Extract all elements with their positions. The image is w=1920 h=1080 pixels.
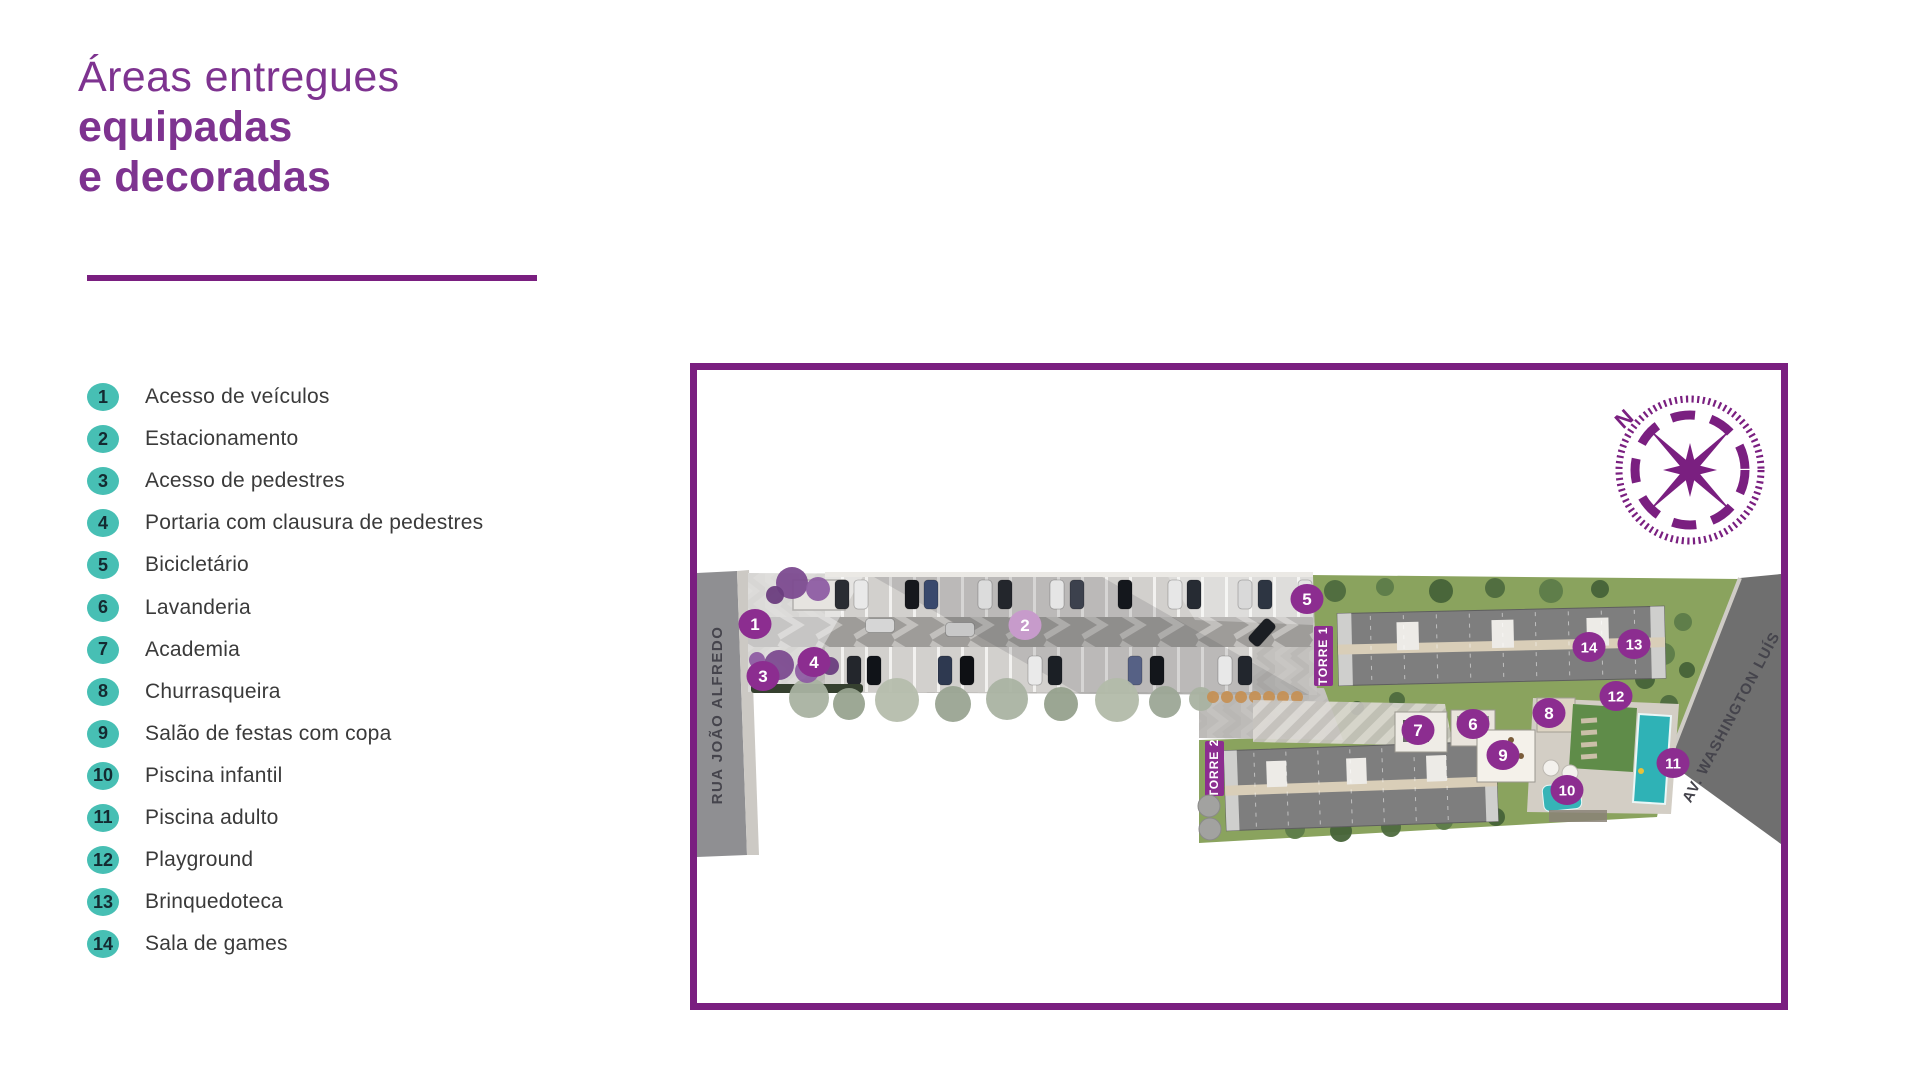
tower-1-label: TORRE 1 [1314, 626, 1333, 686]
legend: 1 Acesso de veículos 2 Estacionamento 3 … [87, 376, 483, 965]
legend-number-badge: 12 [87, 846, 119, 874]
legend-item-4: 4 Portaria com clausura de pedestres [87, 502, 483, 544]
svg-text:10: 10 [1559, 782, 1576, 799]
svg-text:7: 7 [1413, 721, 1422, 740]
lawn [1569, 704, 1637, 772]
page: Áreas entregues equipadas e decoradas 1 … [0, 0, 1920, 1080]
svg-text:5: 5 [1302, 590, 1311, 609]
legend-item-label: Sala de games [145, 932, 288, 956]
title-divider [87, 275, 537, 281]
map-marker-4: 4 [798, 647, 831, 677]
legend-item-2: 2 Estacionamento [87, 418, 483, 460]
legend-item-label: Salão de festas com copa [145, 722, 391, 746]
legend-number-badge: 8 [87, 678, 119, 706]
map-marker-6: 6 [1457, 709, 1490, 739]
legend-item-label: Portaria com clausura de pedestres [145, 511, 483, 535]
tower-2-building [1224, 741, 1499, 830]
legend-number-badge: 13 [87, 888, 119, 916]
legend-number-badge: 2 [87, 425, 119, 453]
legend-item-label: Piscina adulto [145, 806, 279, 830]
umbrella [1543, 760, 1559, 776]
svg-text:2: 2 [1020, 616, 1029, 635]
legend-number-badge: 10 [87, 762, 119, 790]
compass-rose: N [1610, 399, 1761, 541]
legend-item-label: Academia [145, 638, 240, 662]
legend-number-badge: 4 [87, 509, 119, 537]
legend-item-13: 13 Brinquedoteca [87, 881, 483, 923]
legend-item-label: Acesso de veículos [145, 385, 330, 409]
legend-item-label: Estacionamento [145, 427, 298, 451]
legend-item-12: 12 Playground [87, 839, 483, 881]
svg-text:9: 9 [1498, 746, 1507, 765]
svg-text:TORRE 1: TORRE 1 [1316, 627, 1330, 686]
map-marker-9: 9 [1487, 740, 1520, 770]
legend-item-label: Brinquedoteca [145, 890, 283, 914]
svg-text:12: 12 [1608, 688, 1625, 705]
map-marker-7: 7 [1402, 715, 1435, 745]
map-marker-8: 8 [1533, 698, 1566, 728]
legend-number-badge: 3 [87, 467, 119, 495]
site-plan: RUA JOÃO ALFREDO AV. WASHINGTON LUÍS [697, 370, 1781, 1003]
legend-number-badge: 6 [87, 594, 119, 622]
compass-north-label: N [1610, 404, 1639, 433]
page-title: Áreas entregues equipadas e decoradas [78, 52, 400, 202]
site-plan-frame: RUA JOÃO ALFREDO AV. WASHINGTON LUÍS [690, 363, 1788, 1010]
map-marker-10: 10 [1551, 775, 1584, 805]
legend-item-7: 7 Academia [87, 629, 483, 671]
tower-1-building [1337, 606, 1666, 685]
svg-text:3: 3 [758, 667, 767, 686]
map-marker-13: 13 [1618, 629, 1651, 659]
map-marker-14: 14 [1573, 632, 1606, 662]
map-marker-2: 2 [1009, 610, 1042, 640]
legend-item-3: 3 Acesso de pedestres [87, 460, 483, 502]
legend-item-label: Lavanderia [145, 596, 251, 620]
legend-number-badge: 7 [87, 636, 119, 664]
legend-item-9: 9 Salão de festas com copa [87, 713, 483, 755]
svg-text:13: 13 [1626, 636, 1643, 653]
legend-item-label: Piscina infantil [145, 764, 282, 788]
compass-star-icon [1648, 428, 1733, 513]
legend-item-6: 6 Lavanderia [87, 586, 483, 628]
svg-text:4: 4 [809, 653, 819, 672]
legend-item-5: 5 Bicicletário [87, 544, 483, 586]
legend-item-label: Bicicletário [145, 553, 249, 577]
legend-number-badge: 1 [87, 383, 119, 411]
legend-item-10: 10 Piscina infantil [87, 755, 483, 797]
title-line-1: Áreas entregues [78, 52, 400, 102]
title-line-2: equipadas [78, 102, 400, 152]
legend-item-14: 14 Sala de games [87, 923, 483, 965]
legend-item-label: Churrasqueira [145, 680, 281, 704]
legend-number-badge: 11 [87, 804, 119, 832]
tower-2-label: TORRE 2 [1205, 739, 1224, 798]
legend-item-1: 1 Acesso de veículos [87, 376, 483, 418]
map-marker-12: 12 [1600, 681, 1633, 711]
svg-text:14: 14 [1581, 639, 1598, 656]
legend-item-8: 8 Churrasqueira [87, 671, 483, 713]
map-marker-3: 3 [747, 661, 780, 691]
svg-text:1: 1 [750, 615, 759, 634]
legend-item-label: Playground [145, 848, 253, 872]
legend-number-badge: 5 [87, 551, 119, 579]
legend-number-badge: 9 [87, 720, 119, 748]
map-marker-1: 1 [739, 609, 772, 639]
legend-number-badge: 14 [87, 930, 119, 958]
title-line-3: e decoradas [78, 152, 400, 202]
svg-text:8: 8 [1544, 704, 1553, 723]
svg-text:11: 11 [1665, 755, 1681, 772]
legend-item-label: Acesso de pedestres [145, 469, 345, 493]
legend-item-11: 11 Piscina adulto [87, 797, 483, 839]
svg-text:TORRE 2: TORRE 2 [1207, 739, 1221, 798]
street-label-left: RUA JOÃO ALFREDO [708, 626, 726, 805]
svg-text:6: 6 [1468, 715, 1477, 734]
map-marker-11: 11 [1657, 748, 1690, 778]
map-marker-5: 5 [1291, 584, 1324, 614]
